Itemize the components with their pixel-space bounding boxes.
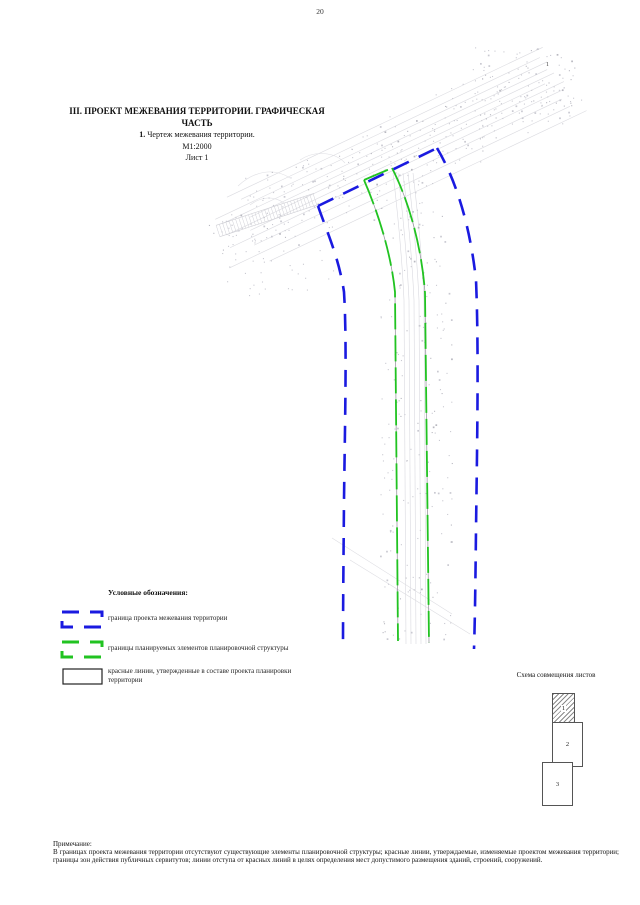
legend-swatch-red-lines (63, 669, 102, 684)
sheet-scheme-title: Схема совмещения листов (486, 671, 626, 679)
sheet-scheme-rect-1-current: 1 (552, 693, 575, 723)
note-body: В границах проекта межевания территории … (53, 848, 619, 864)
document-page: 20 III. ПРОЕКТ МЕЖЕВАНИЯ ТЕРРИТОРИИ. ГРА… (0, 0, 640, 905)
legend-swatch-planning-boundary (62, 642, 102, 657)
legend-item-red-lines: красные линии, утвержденные в составе пр… (108, 667, 326, 684)
sheet-scheme-rect-2: 2 (552, 722, 583, 767)
note-heading: Примечание: (53, 840, 92, 848)
legend-swatches (62, 612, 102, 684)
legend-header: Условные обозначения: (108, 588, 188, 597)
blue-boundary-left (318, 206, 346, 646)
planning-element-boundary-green (364, 168, 429, 643)
topo-background (209, 47, 587, 644)
blue-boundary-right (437, 148, 478, 649)
map-point-marker: 1 (546, 62, 549, 68)
legend-swatch-project-boundary (62, 612, 102, 627)
sheet-scheme-rect-3: 3 (542, 762, 573, 806)
legend-item-planning-boundary: границы планируемых элементов планировоч… (108, 644, 288, 652)
legend-item-project-boundary: граница проекта межевания территории (108, 614, 227, 622)
